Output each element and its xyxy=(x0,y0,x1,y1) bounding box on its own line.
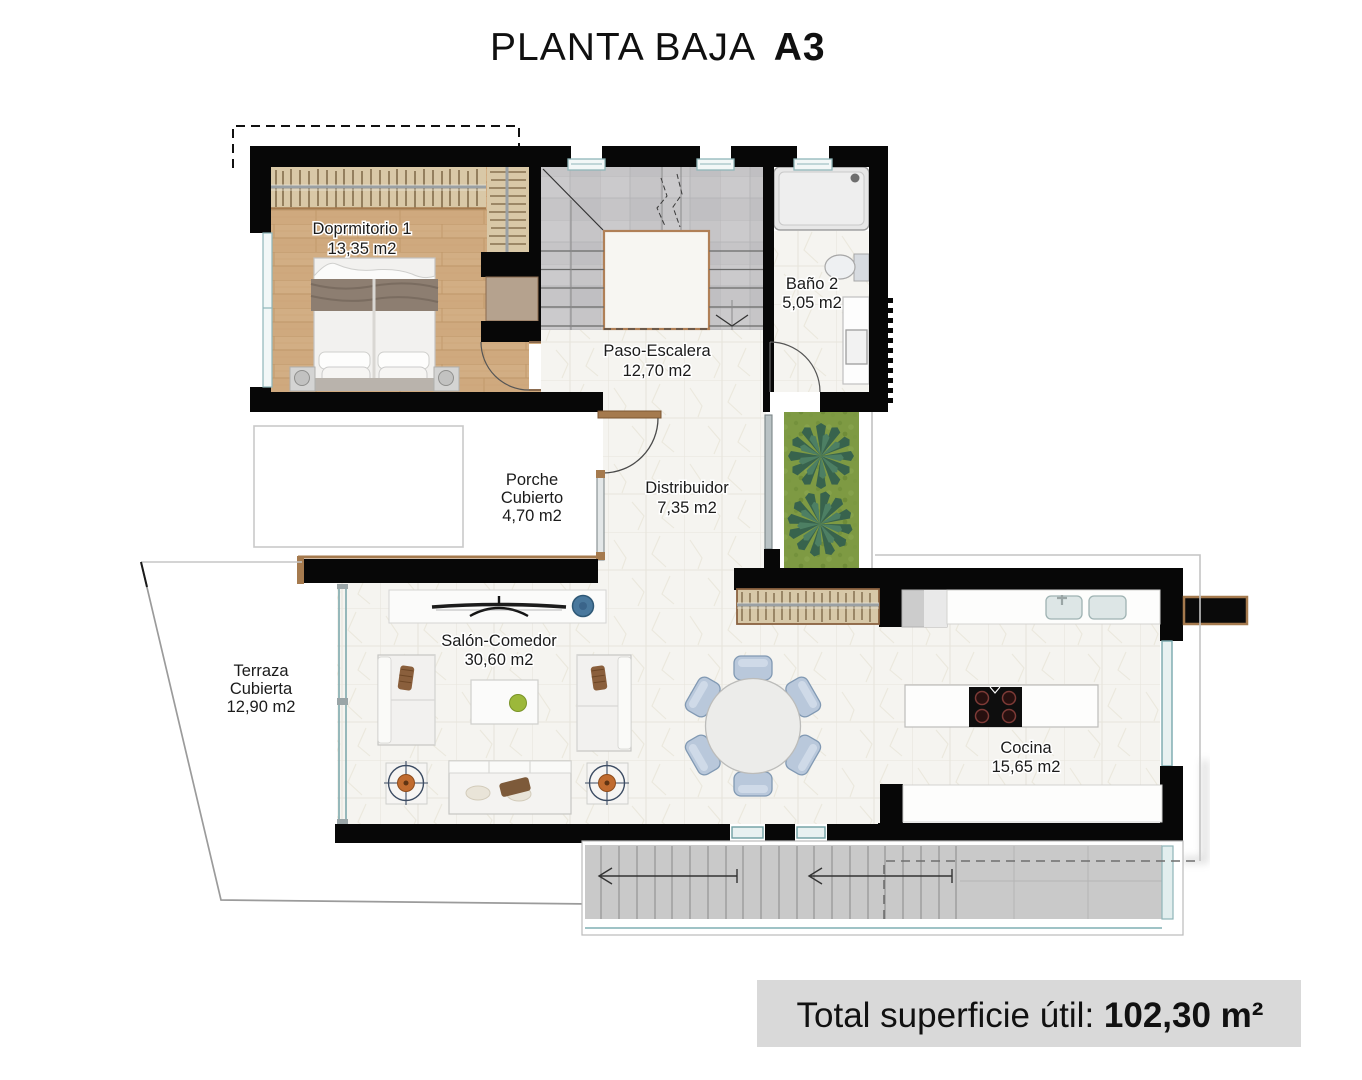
svg-text:13,35 m2: 13,35 m2 xyxy=(328,240,397,258)
svg-text:12,90 m2: 12,90 m2 xyxy=(227,698,296,716)
svg-text:Cocina: Cocina xyxy=(1000,739,1052,757)
svg-text:Cubierta: Cubierta xyxy=(230,680,293,698)
svg-text:15,65 m2: 15,65 m2 xyxy=(992,758,1061,776)
svg-text:Baño 2: Baño 2 xyxy=(786,275,838,293)
svg-text:Cubierto: Cubierto xyxy=(501,489,563,507)
svg-text:PLANTA BAJA A3: PLANTA BAJA A3 xyxy=(490,26,826,69)
svg-text:7,35 m2: 7,35 m2 xyxy=(657,499,717,517)
svg-text:Terraza: Terraza xyxy=(233,662,289,680)
svg-text:4,70 m2: 4,70 m2 xyxy=(502,507,562,525)
svg-text:Paso-Escalera: Paso-Escalera xyxy=(603,342,711,360)
svg-text:Distribuidor: Distribuidor xyxy=(645,479,729,497)
svg-text:Total superficie útil: 102,30: Total superficie útil: 102,30 m² xyxy=(797,996,1264,1035)
svg-text:Salón-Comedor: Salón-Comedor xyxy=(441,632,557,650)
svg-text:12,70 m2: 12,70 m2 xyxy=(623,362,692,380)
svg-text:Porche: Porche xyxy=(506,471,558,489)
svg-text:Doprmitorio 1: Doprmitorio 1 xyxy=(312,220,411,238)
svg-text:30,60 m2: 30,60 m2 xyxy=(465,651,534,669)
svg-text:5,05 m2: 5,05 m2 xyxy=(782,294,842,312)
